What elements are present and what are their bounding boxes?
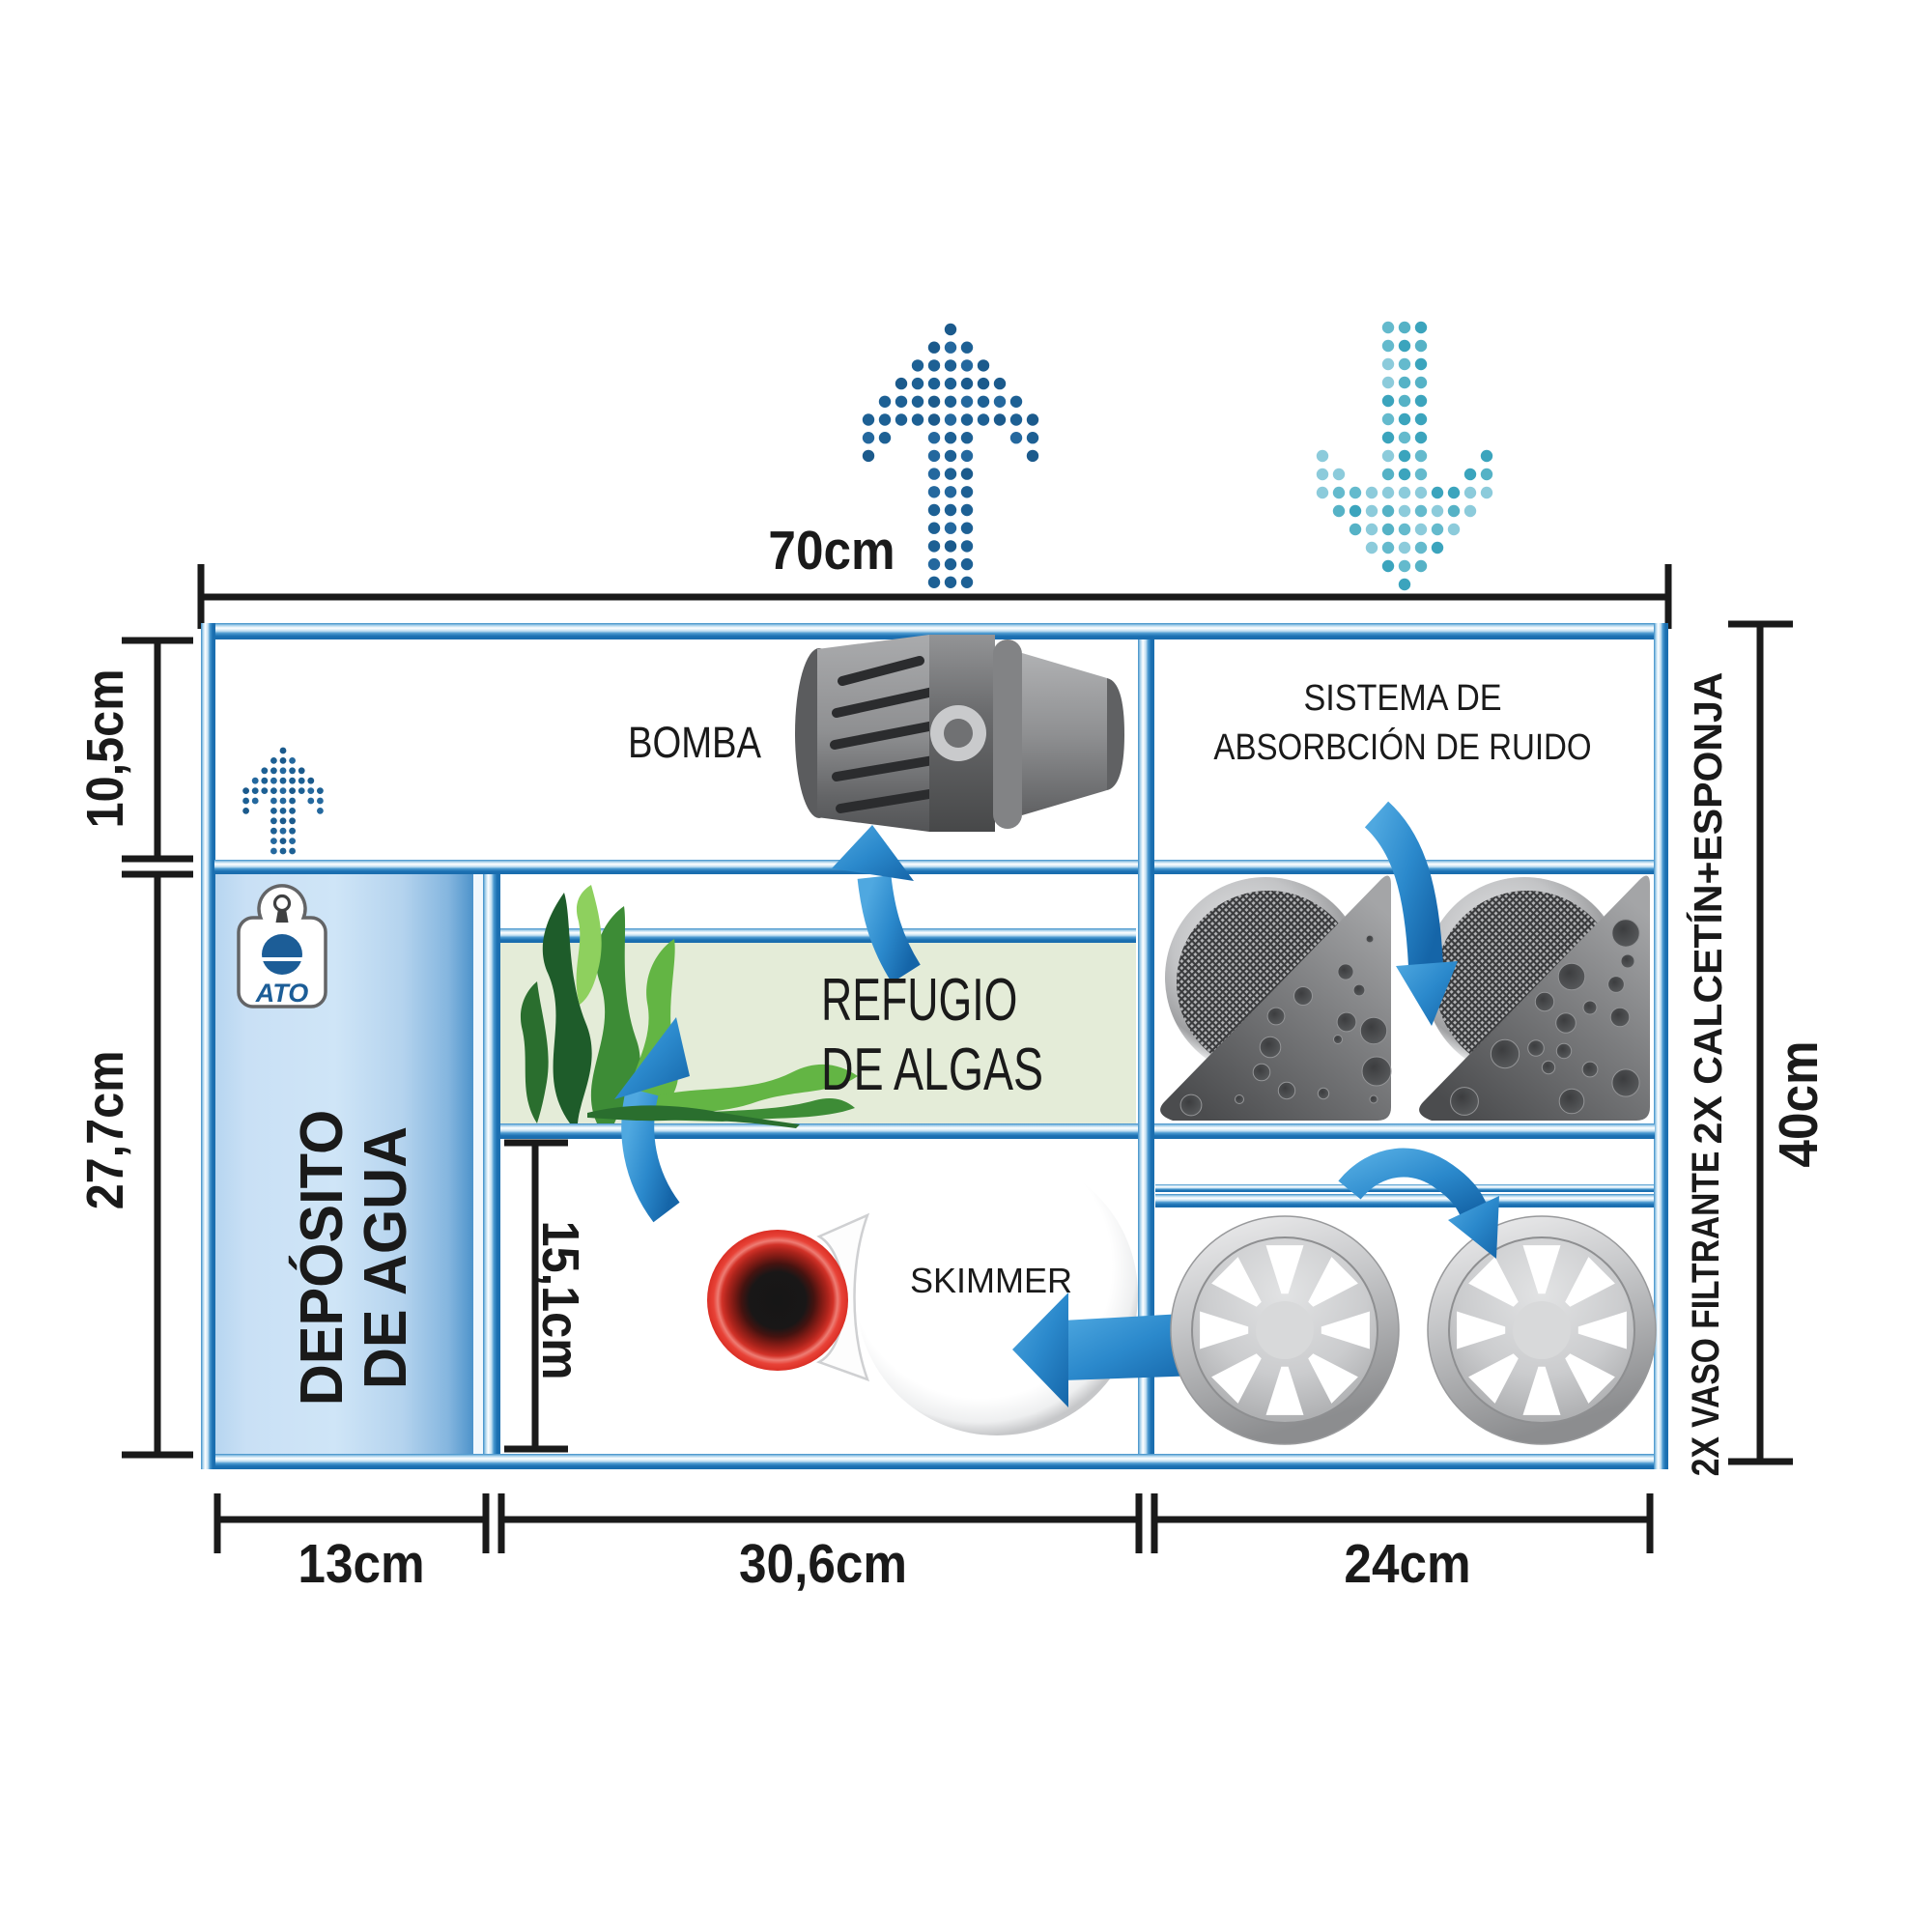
svg-text:REFUGIO: REFUGIO bbox=[821, 967, 1017, 1034]
svg-text:DE AGUA: DE AGUA bbox=[352, 1126, 418, 1389]
svg-text:15,1cm: 15,1cm bbox=[531, 1221, 590, 1380]
svg-text:2X CALCETÍN+ESPONJA: 2X CALCETÍN+ESPONJA bbox=[1686, 672, 1730, 1145]
svg-text:27,7cm: 27,7cm bbox=[75, 1051, 134, 1210]
svg-text:DEPÓSITO: DEPÓSITO bbox=[288, 1110, 355, 1406]
svg-text:DE ALGAS: DE ALGAS bbox=[821, 1035, 1043, 1102]
svg-text:BOMBA: BOMBA bbox=[628, 718, 761, 767]
svg-text:40cm: 40cm bbox=[1769, 1040, 1830, 1167]
svg-text:10,5cm: 10,5cm bbox=[75, 669, 134, 829]
svg-text:70cm: 70cm bbox=[768, 521, 895, 582]
svg-text:ABSORBCIÓN DE RUIDO: ABSORBCIÓN DE RUIDO bbox=[1213, 726, 1591, 768]
svg-text:ATO: ATO bbox=[255, 979, 309, 1008]
svg-text:2X VASO FILTRANTE: 2X VASO FILTRANTE bbox=[1684, 1151, 1726, 1476]
svg-text:30,6cm: 30,6cm bbox=[739, 1534, 907, 1595]
svg-text:SKIMMER: SKIMMER bbox=[910, 1261, 1072, 1300]
svg-text:SISTEMA DE: SISTEMA DE bbox=[1303, 676, 1501, 718]
svg-text:13cm: 13cm bbox=[298, 1534, 424, 1595]
svg-text:24cm: 24cm bbox=[1344, 1534, 1470, 1595]
